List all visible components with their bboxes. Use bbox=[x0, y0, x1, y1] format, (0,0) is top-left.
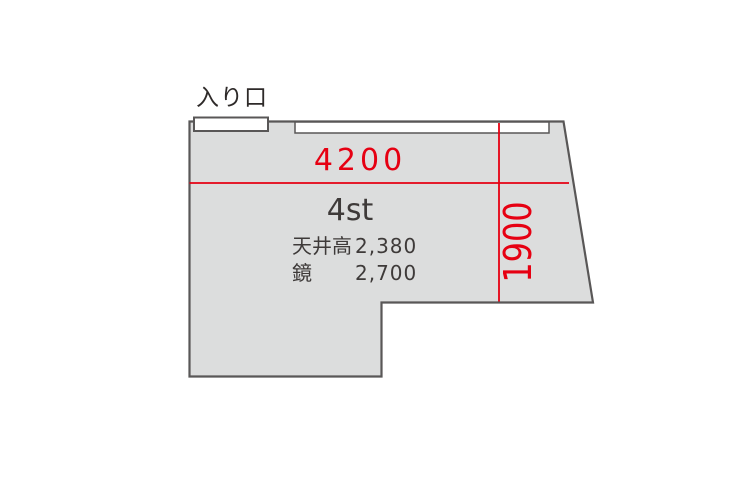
room-name: 4st bbox=[327, 196, 373, 226]
ceiling-height-value: 2,380 bbox=[355, 236, 417, 256]
mirror-strip bbox=[295, 122, 549, 133]
spec-row-mirror: 鏡 2,700 bbox=[292, 259, 417, 286]
entrance-door bbox=[194, 118, 268, 132]
room-specs: 天井高 2,380 鏡 2,700 bbox=[292, 232, 417, 286]
spec-row-ceiling: 天井高 2,380 bbox=[292, 232, 417, 259]
mirror-length-label: 鏡 bbox=[292, 263, 355, 283]
width-dimension-value: 4200 bbox=[314, 146, 406, 176]
ceiling-height-label: 天井高 bbox=[292, 236, 355, 256]
mirror-length-value: 2,700 bbox=[355, 263, 417, 283]
depth-dimension-value: 1900 bbox=[499, 201, 537, 282]
entrance-label: 入り口 bbox=[196, 87, 268, 110]
floorplan-canvas: 入り口 4200 1900 4st 天井高 2,380 鏡 2,700 bbox=[0, 0, 750, 498]
